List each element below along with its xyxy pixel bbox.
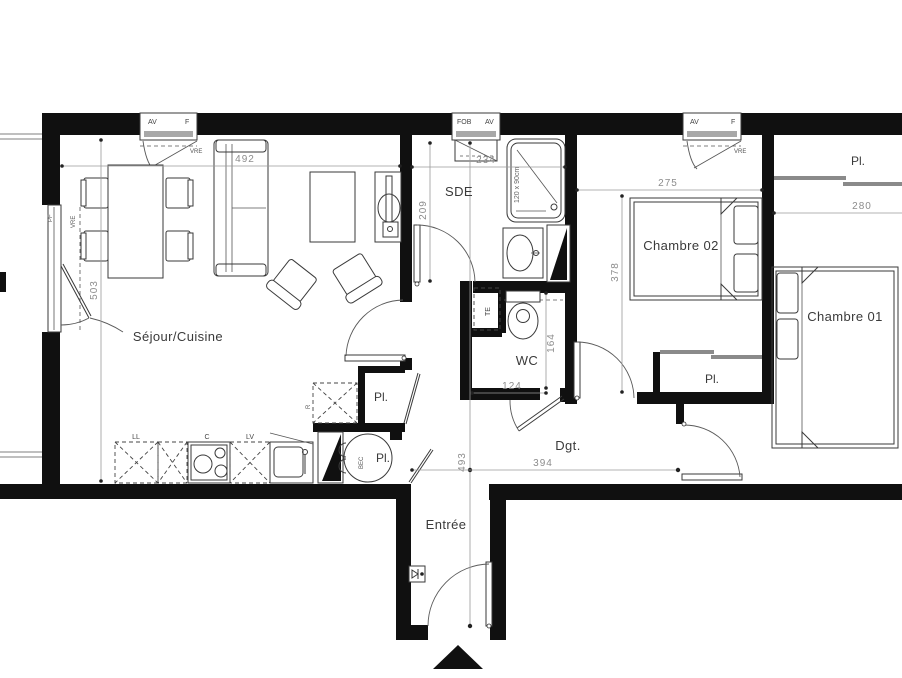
label-dishwasher: LV: [246, 434, 254, 441]
window-sejour: AV F VRE: [140, 113, 202, 169]
balcony-railing: [0, 134, 43, 457]
armchair-1: [265, 257, 320, 312]
dim-sde-height: 209: [418, 200, 429, 220]
door-wc: [510, 396, 564, 431]
dim-sejour-width: 492: [235, 154, 255, 165]
coffee-table: [310, 172, 355, 242]
fridge-label: R: [306, 404, 312, 409]
door-sejour: [345, 300, 406, 361]
room-label-wc: WC: [516, 353, 538, 368]
room-label-dgt: Dgt.: [555, 438, 580, 453]
washbasin: [503, 228, 543, 278]
door-closet-sejour: [404, 373, 420, 424]
door-chambre02: [574, 342, 634, 400]
room-label-sde: SDE: [445, 184, 473, 199]
technical-shaft-sde: [547, 225, 570, 282]
te-shaft: TE: [474, 288, 500, 330]
room-label-chambre01: Chambre 01: [807, 309, 883, 324]
room-label-sejour: Séjour/Cuisine: [133, 329, 223, 344]
door-chambre01: [682, 422, 742, 480]
dim-sejour-height: 503: [89, 280, 100, 300]
dim-wc-width: 124: [502, 381, 522, 392]
fridge: R: [306, 383, 357, 423]
vre-label-sejour: VRE: [190, 149, 202, 155]
kitchen-cooktop: [188, 442, 230, 483]
dim-wc-height: 164: [546, 333, 557, 353]
shower-size-label: 120 x 90cm: [514, 167, 521, 203]
floor-plan-drawing: AV F VRE FOB AV AV F VRE PF VRE: [0, 0, 902, 678]
toilet: [504, 291, 563, 339]
dim-ch1-width: 280: [852, 201, 872, 212]
tv-unit: [375, 172, 401, 242]
closet-chambre-01: [774, 178, 902, 184]
window-label-fob: FOB: [457, 119, 472, 126]
window-label-av3: AV: [690, 119, 699, 126]
label-cooktop: C: [204, 434, 209, 441]
vre-label-pf: VRE: [71, 216, 77, 228]
dim-sde-width: 234: [476, 155, 496, 166]
vre-label-chambre02: VRE: [734, 149, 746, 155]
entrance-arrow: [433, 645, 483, 669]
closet-chambre-02: [660, 352, 762, 357]
dim-ch2-width: 275: [658, 178, 678, 189]
window-label-av2: AV: [485, 119, 494, 126]
label-washer: LL: [132, 434, 140, 441]
shower: 120 x 90cm: [507, 139, 565, 222]
te-label: TE: [485, 307, 492, 316]
bec-label: BEC: [359, 456, 365, 469]
window-label-f: F: [185, 119, 189, 126]
technical-shaft-kitchen: [318, 432, 343, 483]
bed-chambre-01: [772, 267, 898, 448]
closet-label-ch02: Pl.: [705, 372, 719, 386]
kitchen-dishwasher: [230, 442, 270, 483]
closet-label-ch01: Pl.: [851, 154, 865, 168]
dining-table: [108, 165, 163, 278]
dim-ch2-height: 378: [610, 262, 621, 282]
pf-label: PF: [48, 214, 54, 222]
intercom-icon: [409, 566, 425, 582]
dim-hall-height: 493: [457, 452, 468, 472]
kitchen-sink: [270, 433, 313, 483]
door-entree: [428, 562, 492, 628]
door-sde: [414, 225, 475, 286]
window-label-f2: F: [731, 119, 735, 126]
armchair-2: [330, 251, 384, 304]
window-chambre02: AV F VRE: [683, 113, 746, 169]
room-label-entree: Entrée: [426, 517, 467, 532]
closet-label-sejour: Pl.: [374, 390, 388, 404]
dim-hall-width: 394: [533, 458, 553, 469]
kitchen-washer: [115, 442, 158, 483]
window-label-av: AV: [148, 119, 157, 126]
floor-plan: AV F VRE FOB AV AV F VRE PF VRE: [0, 0, 902, 678]
window-sde: FOB AV: [452, 113, 500, 161]
door-closet-bec: [409, 449, 433, 483]
kitchen-unit: [158, 442, 187, 483]
closet-label-bec: Pl.: [376, 451, 390, 465]
room-label-chambre02: Chambre 02: [643, 238, 719, 253]
